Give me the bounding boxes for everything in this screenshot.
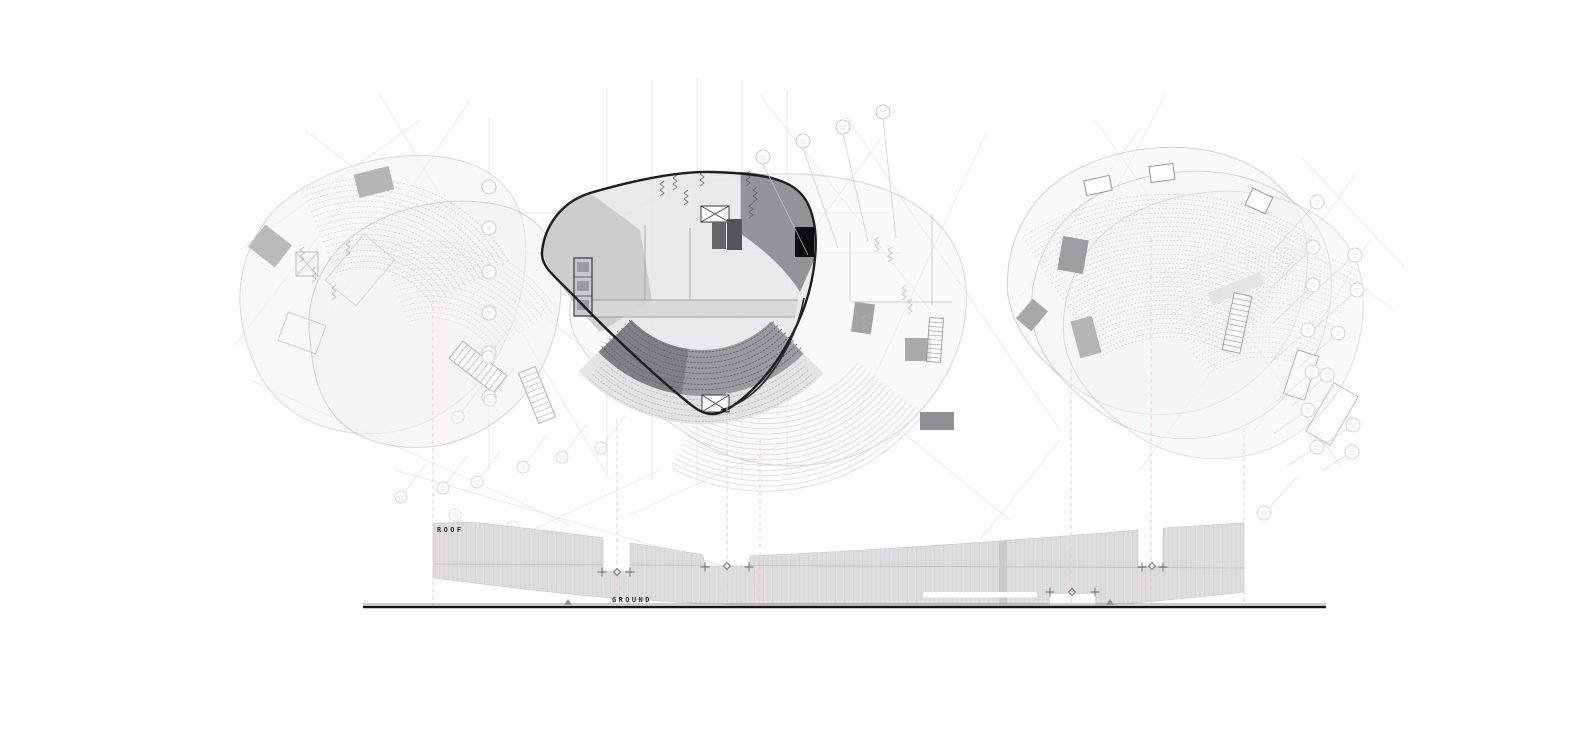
drawing-canvas: ROOFGROUND bbox=[0, 0, 1582, 737]
main-plan-black-core bbox=[795, 227, 814, 257]
ground-label: GROUND bbox=[612, 596, 652, 604]
main-plan-stair-cell bbox=[577, 281, 589, 291]
grid-bubble bbox=[756, 105, 890, 164]
main-plan-corridor bbox=[586, 300, 798, 317]
center-overlay-core bbox=[920, 412, 954, 430]
main-plan-shaft bbox=[727, 219, 742, 250]
main-plan-shaft bbox=[712, 222, 726, 249]
main-plan-elevator-core bbox=[701, 206, 729, 222]
section-roof-band bbox=[433, 522, 1244, 605]
architectural-sheet: ROOFGROUND bbox=[0, 0, 1582, 737]
section-window-opening bbox=[923, 592, 1037, 598]
right-plan-roof-hatch bbox=[1149, 163, 1175, 182]
grid-bubble-leader bbox=[1269, 477, 1297, 508]
main-plan-stair-cell bbox=[577, 262, 589, 272]
section-door-opening bbox=[1050, 594, 1095, 605]
center-overlay-stair bbox=[926, 318, 943, 363]
roof-label: ROOF bbox=[437, 526, 463, 534]
grid-bubble bbox=[1257, 506, 1271, 520]
